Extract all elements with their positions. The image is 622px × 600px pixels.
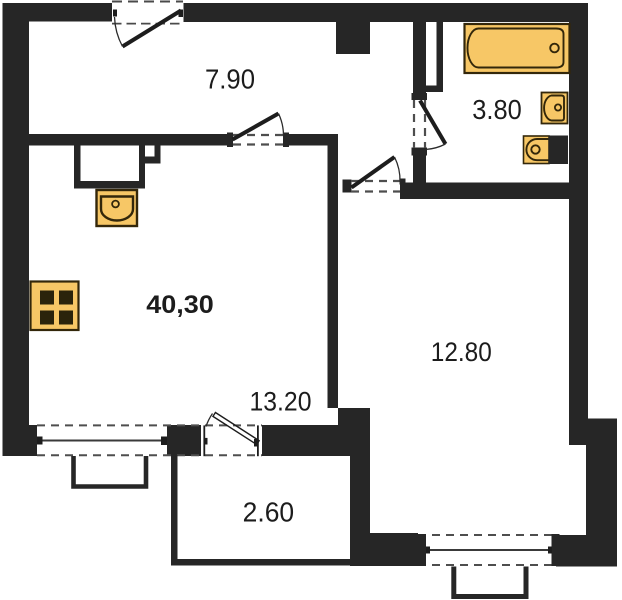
- svg-text:12.80: 12.80: [431, 337, 492, 367]
- svg-text:3.80: 3.80: [472, 94, 522, 125]
- svg-text:13.20: 13.20: [250, 387, 312, 417]
- svg-text:7.90: 7.90: [205, 64, 255, 95]
- svg-text:40,30: 40,30: [146, 291, 214, 319]
- svg-text:2.60: 2.60: [243, 497, 295, 528]
